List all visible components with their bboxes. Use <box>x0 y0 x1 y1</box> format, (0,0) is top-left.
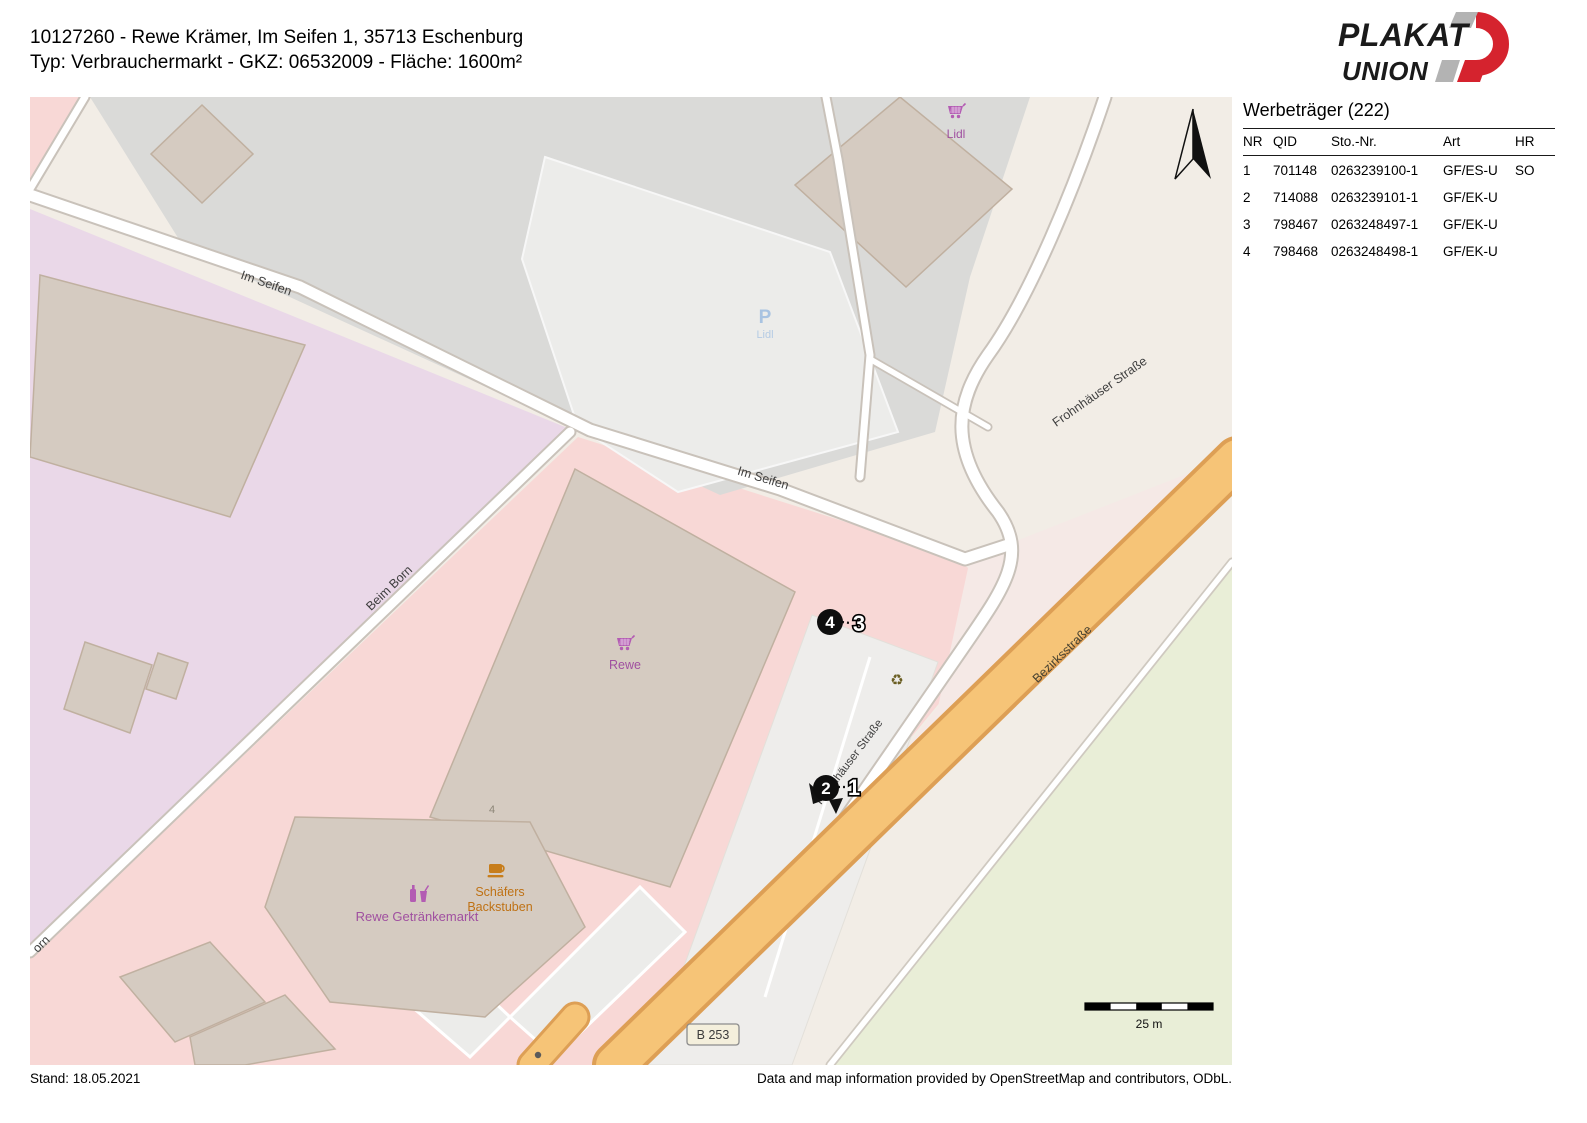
stand-date: Stand: 18.05.2021 <box>30 1071 140 1086</box>
col-header-nr: NR <box>1243 129 1273 156</box>
table-row: 1 701148 0263239100-1 GF/ES-U SO <box>1243 156 1555 184</box>
cell-hr: SO <box>1515 156 1555 184</box>
map-canvas: Im Seifen Im Seifen Beim Born orn Frohnh… <box>30 97 1232 1065</box>
werbetraeger-table: NR QID Sto.-Nr. Art HR 1 701148 02632391… <box>1243 128 1555 264</box>
cell-sto: 0263239101-1 <box>1331 183 1443 210</box>
cell-art: GF/ES-U <box>1443 156 1515 184</box>
coffee-cup-icon <box>488 864 504 877</box>
cell-qid: 798467 <box>1273 210 1331 237</box>
table-row: 3 798467 0263248497-1 GF/EK-U <box>1243 210 1555 237</box>
cell-sto: 0263239100-1 <box>1331 156 1443 184</box>
recycling-icon: ♻ <box>890 672 903 689</box>
cell-sto: 0263248498-1 <box>1331 237 1443 264</box>
map-svg: Im Seifen Im Seifen Beim Born orn Frohnh… <box>30 97 1232 1065</box>
logo-word-union: UNION <box>1342 56 1429 86</box>
panel-title: Werbeträger (222) <box>1243 100 1390 121</box>
cell-art: GF/EK-U <box>1443 183 1515 210</box>
col-header-qid: QID <box>1273 129 1331 156</box>
route-badge-b253: B 253 <box>687 1024 739 1045</box>
route-badge-text: B 253 <box>697 1028 730 1042</box>
getraenkemarkt-label: Rewe Getränkemarkt <box>356 909 479 924</box>
rewe-poi-label: Rewe <box>609 658 641 672</box>
parking-operator-label: Lidl <box>756 329 773 341</box>
cell-qid: 798468 <box>1273 237 1331 264</box>
schaefers-label-line1: Schäfers <box>475 885 524 899</box>
parking-p-label: P <box>759 307 772 328</box>
cell-hr <box>1515 210 1555 237</box>
small-poi-dot <box>535 1052 541 1058</box>
report-page: 10127260 - Rewe Krämer, Im Seifen 1, 357… <box>0 0 1587 1123</box>
house-number-label: 4 <box>489 804 495 816</box>
page-title: 10127260 - Rewe Krämer, Im Seifen 1, 357… <box>30 27 523 49</box>
plakat-union-logo: PLAKAT UNION <box>1338 8 1543 88</box>
cell-nr: 4 <box>1243 237 1273 264</box>
page-subtitle: Typ: Verbrauchermarkt - GKZ: 06532009 - … <box>30 52 522 74</box>
table-row: 2 714088 0263239101-1 GF/EK-U <box>1243 183 1555 210</box>
cell-nr: 1 <box>1243 156 1273 184</box>
col-header-hr: HR <box>1515 129 1555 156</box>
cell-hr <box>1515 237 1555 264</box>
lidl-poi-label: Lidl <box>947 127 966 141</box>
scale-bar-label: 25 m <box>1136 1017 1163 1031</box>
cell-art: GF/EK-U <box>1443 237 1515 264</box>
cell-sto: 0263248497-1 <box>1331 210 1443 237</box>
logo-red-slash-bottom <box>1457 60 1488 82</box>
marker-4-number: 4 <box>825 613 835 632</box>
cell-art: GF/EK-U <box>1443 210 1515 237</box>
cell-nr: 2 <box>1243 183 1273 210</box>
logo-gray-slash-bottom <box>1435 60 1460 82</box>
cell-hr <box>1515 183 1555 210</box>
col-header-art: Art <box>1443 129 1515 156</box>
cell-qid: 714088 <box>1273 183 1331 210</box>
schaefers-label-line2: Backstuben <box>467 900 532 914</box>
table-row: 4 798468 0263248498-1 GF/EK-U <box>1243 237 1555 264</box>
map-attribution: Data and map information provided by Ope… <box>757 1071 1232 1086</box>
marker-1-number: 1 <box>848 775 860 800</box>
table-header-row: NR QID Sto.-Nr. Art HR <box>1243 129 1555 156</box>
logo-word-plakat: PLAKAT <box>1338 17 1470 53</box>
cell-nr: 3 <box>1243 210 1273 237</box>
col-header-sto: Sto.-Nr. <box>1331 129 1443 156</box>
marker-3-number: 3 <box>853 611 865 636</box>
cell-qid: 701148 <box>1273 156 1331 184</box>
marker-2-number: 2 <box>821 779 830 798</box>
